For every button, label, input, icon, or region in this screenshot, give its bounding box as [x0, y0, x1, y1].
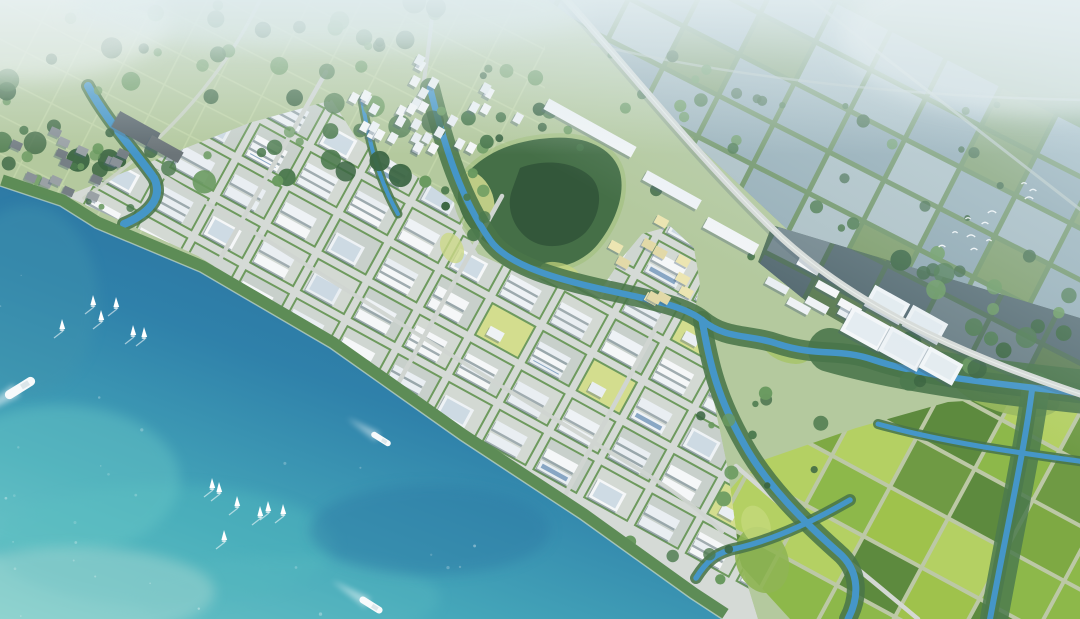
scene-svg: [0, 0, 1080, 619]
masterplan-aerial-rendering: [0, 0, 1080, 619]
